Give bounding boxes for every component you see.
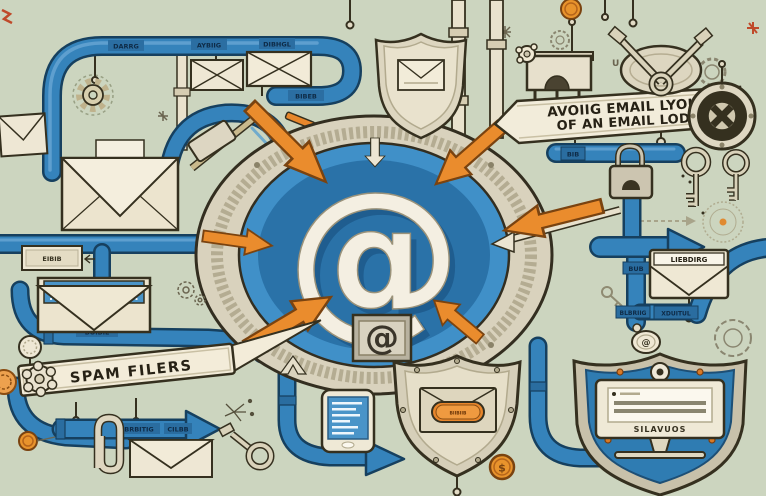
orange-gear-icon — [0, 370, 16, 394]
target-seal-icon — [689, 83, 755, 149]
pipe-label: AYBIIG — [197, 42, 221, 50]
plaque-label: EIBIB — [42, 255, 61, 263]
pipe-label: DARRG — [113, 43, 139, 51]
pipe-label: CILBB — [167, 426, 188, 434]
at-charm-icon: @ — [632, 331, 660, 353]
pipe-label: BIB — [567, 151, 579, 159]
envelope-keyboard-icon — [38, 278, 150, 332]
svg-text:@: @ — [642, 339, 651, 349]
illustration-canvas: DARRG AYBIIG DIBHGL BIBEB BOIBIL BRBITIG… — [0, 0, 766, 496]
orange-medallion-icon — [561, 0, 581, 19]
envelope-plaque-label: LIEBDIRG — [671, 256, 708, 264]
envelope-icon — [398, 60, 444, 90]
svg-text:$: $ — [498, 462, 506, 475]
monitor-label: SILAVUOS — [634, 425, 687, 434]
envelope-icon — [191, 60, 243, 90]
capsule-label: BIIBIIB — [450, 411, 468, 417]
email-pipes-illustration: DARRG AYBIIG DIBHGL BIBEB BOIBIL BRBITIG… — [0, 0, 766, 496]
corner-mark: U — [612, 59, 619, 69]
pipe-label: XDUITUL — [661, 311, 691, 318]
envelope-top-left-icon — [0, 113, 47, 156]
medallion-icon — [19, 336, 41, 358]
pipe-label: DIBHGL — [263, 41, 291, 49]
envelope-icon — [247, 52, 311, 86]
pipe-label: BIBEB — [295, 93, 317, 101]
svg-text:@: @ — [365, 318, 399, 358]
phone-icon — [322, 390, 374, 452]
dollar-coin-icon: $ — [490, 455, 514, 479]
pipe-label: BLBRIIG — [620, 310, 647, 317]
at-badge: @ — [353, 315, 411, 361]
pipe-label: BRBITIG — [124, 426, 154, 434]
envelope-bottom-icon — [130, 440, 212, 477]
pipe-label: BUB — [628, 265, 643, 273]
envelope-plaque-right: LIEBDIRG — [650, 250, 728, 298]
